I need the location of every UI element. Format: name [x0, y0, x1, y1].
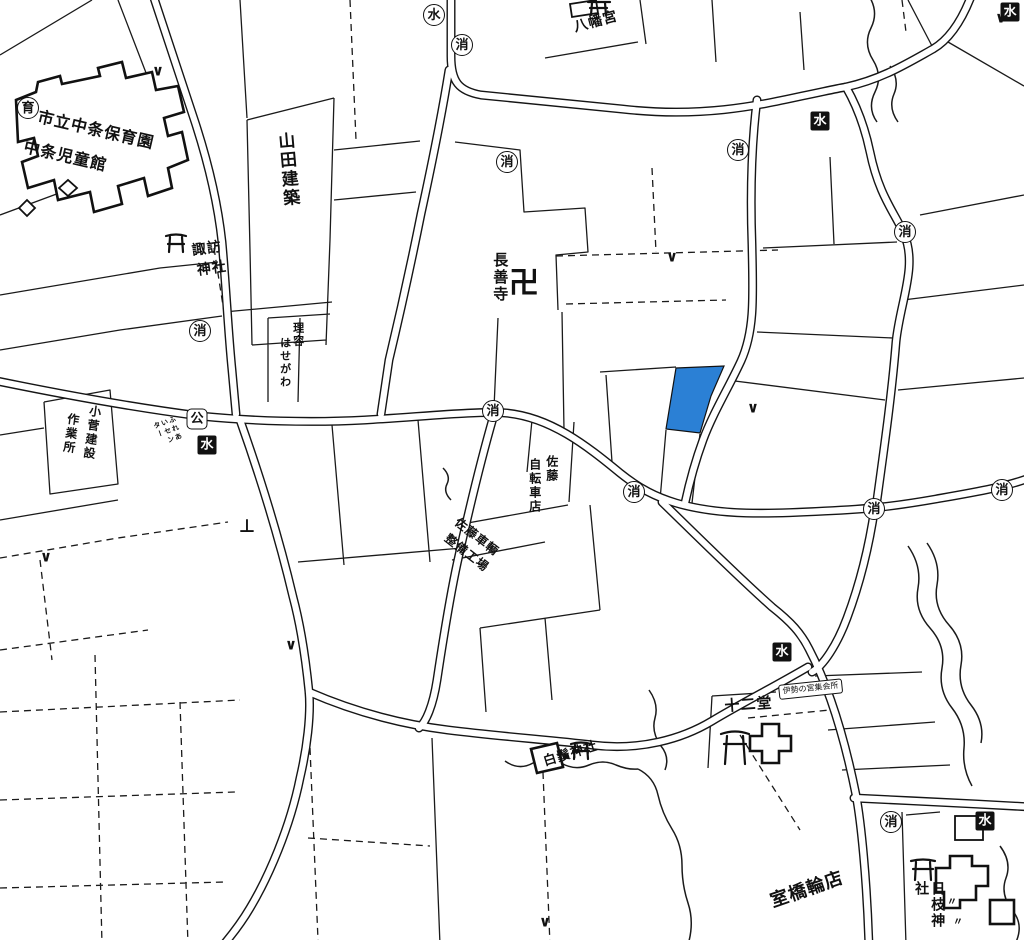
field-mark-icon: ∨: [539, 915, 551, 930]
fire-hydrant-icon: 消: [482, 400, 504, 422]
map-label: 白鬚神社: [542, 740, 600, 771]
fire-hydrant-icon: 消: [863, 498, 885, 520]
fire-hydrant-icon: 消: [880, 811, 902, 833]
nursery-school-icon: 育: [17, 97, 39, 119]
map-label: ふれあいセンター: [152, 415, 186, 453]
fire-cistern-icon: 水: [198, 436, 217, 455]
map-label: 神社: [196, 259, 228, 279]
map-label: 中条児童館: [22, 138, 109, 175]
fire-hydrant-icon: 消: [727, 139, 749, 161]
public-facility-icon: 公: [187, 409, 208, 430]
temple-manji-icon: 卍: [509, 269, 539, 299]
map-label: 諏訪: [191, 239, 223, 259]
map-label: 十二堂: [724, 695, 773, 716]
map-label: 八幡宮: [572, 8, 620, 35]
fire-hydrant-icon: 消: [894, 221, 916, 243]
fire-cistern-icon: 水: [773, 643, 792, 662]
map-label: はせがわ: [278, 337, 291, 389]
field-mark-icon: ∨: [995, 11, 1007, 26]
fire-hydrant-icon: 消: [496, 151, 518, 173]
map-label: 長善寺: [491, 252, 508, 303]
fire-cistern-icon: 水: [976, 812, 995, 831]
field-mark-icon: ∨: [666, 250, 678, 265]
map-annotations: 市立中条保育園中条児童館山田建築諏訪神社理容はせがわ長善寺八幡宮小菅建設作業所ふ…: [0, 0, 1024, 940]
monument-mark-icon: ⊥: [239, 518, 255, 536]
fire-hydrant-icon: 消: [623, 481, 645, 503]
field-mark-icon: ∨: [152, 64, 164, 79]
map-label: 小菅建設: [80, 404, 101, 461]
map-label: 自転車店: [527, 458, 541, 514]
grass-mark-icon: 〃: [953, 918, 963, 928]
map-label: 作業所: [60, 412, 80, 456]
map-label: 佐藤: [544, 455, 558, 483]
field-mark-icon: ∨: [747, 401, 759, 416]
map-label: 理容: [291, 322, 304, 348]
map-label: 日枝神社: [913, 881, 945, 940]
field-mark-icon: ∨: [40, 550, 52, 565]
fire-hydrant-icon: 消: [451, 34, 473, 56]
map-label: 室橋輪店: [768, 868, 847, 912]
map-label: 伊勢の宮集会所: [778, 678, 843, 699]
field-mark-icon: ∨: [285, 638, 297, 653]
fire-hydrant-icon: 消: [189, 320, 211, 342]
water-facility-icon: 水: [423, 4, 445, 26]
fire-hydrant-icon: 消: [991, 479, 1013, 501]
cadastral-map: 市立中条保育園中条児童館山田建築諏訪神社理容はせがわ長善寺八幡宮小菅建設作業所ふ…: [0, 0, 1024, 940]
grass-mark-icon: 〃: [947, 898, 957, 908]
map-label: 山田建築: [273, 131, 299, 208]
fire-cistern-icon: 水: [811, 112, 830, 131]
